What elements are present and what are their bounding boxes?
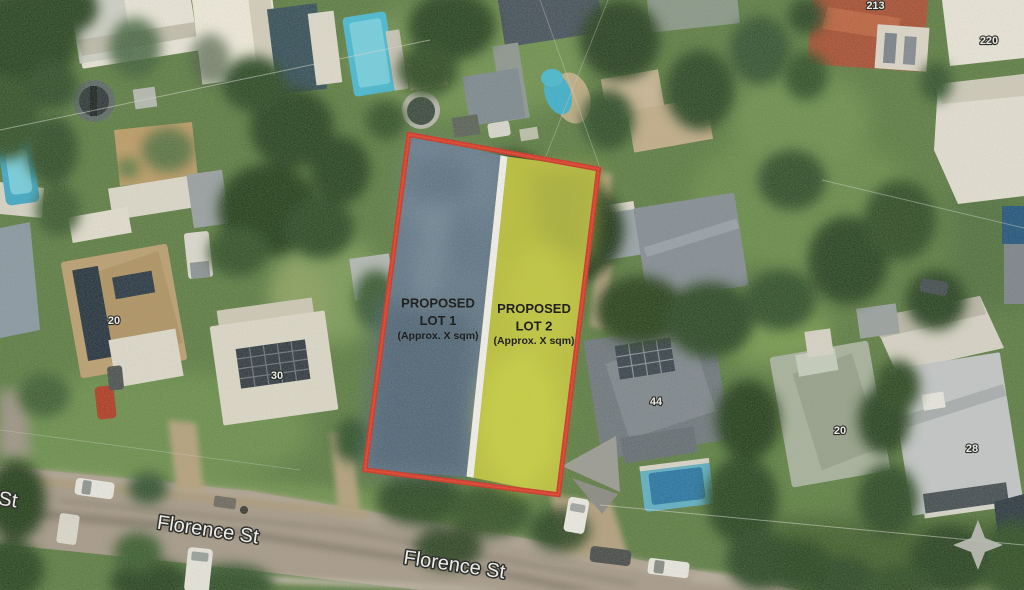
svg-text:213: 213 [866,0,884,12]
svg-text:(Approx. X sqm): (Approx. X sqm) [397,330,478,342]
svg-text:LOT 2: LOT 2 [516,319,553,334]
svg-text:LOT 1: LOT 1 [420,313,457,328]
svg-text:220: 220 [980,35,998,47]
svg-text:PROPOSED: PROPOSED [401,296,475,311]
svg-text:28: 28 [966,443,978,455]
svg-text:20: 20 [834,425,846,437]
svg-text:(Approx. X sqm): (Approx. X sqm) [493,335,574,347]
svg-text:PROPOSED: PROPOSED [497,301,571,316]
svg-text:44: 44 [650,396,663,408]
svg-text:20: 20 [108,315,120,327]
svg-text:30: 30 [271,370,283,382]
